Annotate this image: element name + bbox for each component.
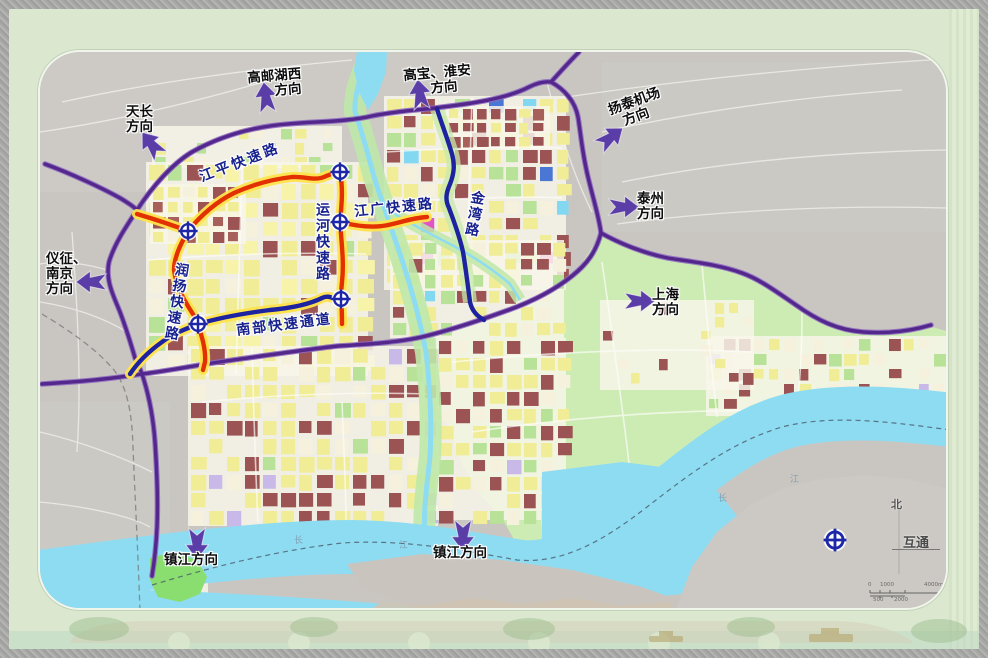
scalebar-zero: 0	[868, 582, 872, 588]
label-taizhou: 泰州 方向	[637, 192, 664, 222]
interchange-icon	[188, 314, 207, 333]
river-label: 江	[399, 538, 409, 551]
legend-interchange-entry: 互通	[892, 532, 940, 550]
scalebar-2000: 2000	[894, 597, 908, 603]
map-canvas: 天长 方向 高邮湖西 方向 高宝、淮安 方向 扬泰机场 方向 泰州 方向 上海 …	[38, 50, 948, 610]
label-yizheng-nanjing: 仪征、 南京 方向	[46, 252, 87, 297]
label-road-yunhe: 运河快速路	[312, 202, 332, 282]
frame-right-texture	[949, 9, 979, 649]
label-gaobao-huaian: 高宝、淮安 方向	[403, 63, 473, 99]
interchange-icon	[331, 289, 350, 308]
river-label: 长	[718, 491, 728, 504]
north-indicator: 北	[891, 496, 902, 512]
frame-bottom-decoration	[9, 609, 979, 649]
scalebar-1000: 1000	[880, 582, 894, 588]
river-label: 江	[790, 472, 800, 485]
label-zhenjiang-east: 镇江方向	[433, 546, 487, 561]
label-gaoyou-lake-west: 高邮湖西 方向	[247, 67, 303, 102]
interchange-icon	[330, 212, 349, 231]
screenshot-root: { "colors": { "ring_road": "#53278c", "e…	[0, 0, 988, 658]
scalebar-500: 500	[873, 597, 884, 603]
label-zhenjiang-west: 镇江方向	[164, 553, 218, 568]
label-tianchang: 天长 方向	[126, 105, 153, 135]
river-label: 长	[294, 533, 304, 546]
interchange-icon	[178, 221, 197, 240]
label-shanghai: 上海 方向	[652, 288, 679, 318]
scalebar-4000m: 4000m	[924, 582, 943, 588]
interchange-icon	[330, 162, 349, 181]
legend-interchange-icon	[824, 529, 847, 552]
legend-interchange-label: 互通	[903, 536, 929, 551]
